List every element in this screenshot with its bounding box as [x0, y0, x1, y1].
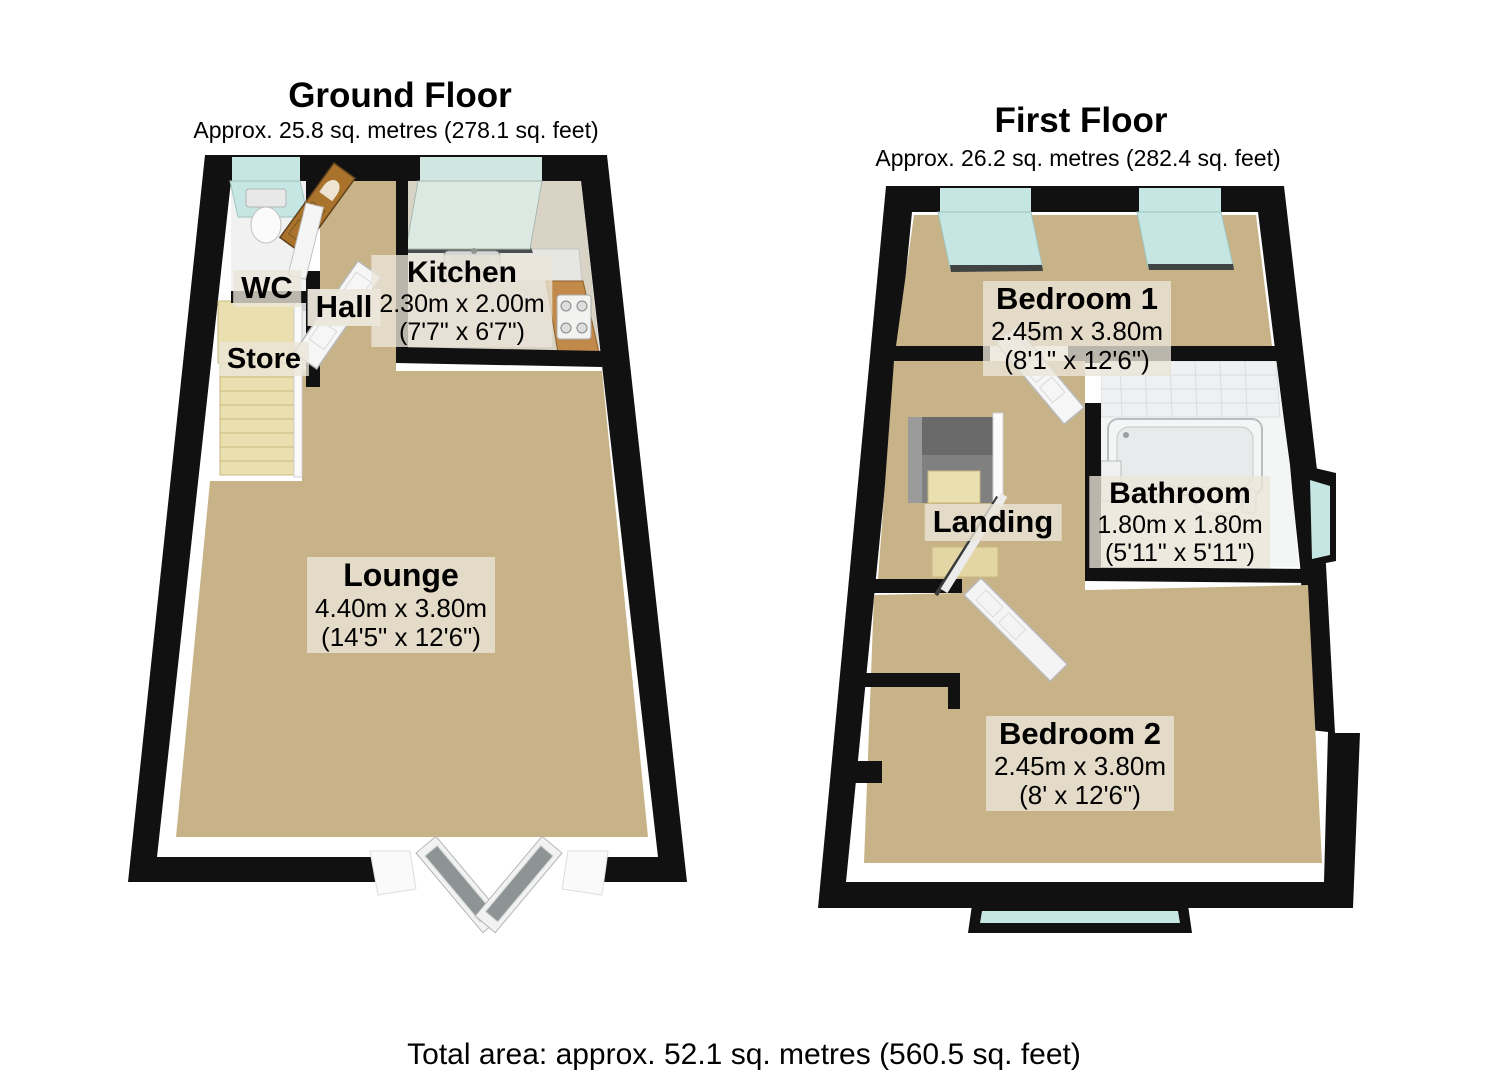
ff-bedroom1-window1-pane	[938, 212, 1042, 268]
gf-banister	[294, 301, 302, 477]
bedroom1-label: Bedroom 1 2.45m x 3.80m (8'1" x 12'6")	[983, 281, 1171, 376]
landing-label: Landing	[925, 504, 1062, 541]
ff-bedroom2-window-icon	[980, 911, 1180, 923]
first-floor-title: First Floor	[994, 101, 1167, 141]
lounge-dims-imperial: (14'5" x 12'6")	[315, 623, 487, 652]
ground-floor-title: Ground Floor	[288, 76, 512, 116]
lounge-dims-metric: 4.40m x 3.80m	[315, 594, 487, 623]
floorplan-page: Ground Floor Approx. 25.8 sq. metres (27…	[0, 0, 1485, 1080]
kitchen-name: Kitchen	[379, 256, 544, 290]
ff-window1-sill	[950, 265, 1043, 272]
gf-hob-icon	[557, 295, 591, 339]
first-floor-area: Approx. 26.2 sq. metres (282.4 sq. feet)	[875, 145, 1280, 172]
ff-bathroom-bottom-wall	[1085, 567, 1311, 583]
ff-window2-sill	[1148, 264, 1234, 270]
kitchen-dims-imperial: (7'7" x 6'7")	[379, 318, 544, 346]
bedroom2-name: Bedroom 2	[994, 717, 1166, 752]
ff-bedroom1-window1-icon	[940, 188, 1031, 212]
gf-kitchen-window-pane	[406, 181, 542, 249]
lounge-label: Lounge 4.40m x 3.80m (14'5" x 12'6")	[307, 557, 495, 653]
lounge-name: Lounge	[315, 558, 487, 594]
kitchen-dims-metric: 2.30m x 2.00m	[379, 290, 544, 318]
gf-patio-jamb-left	[370, 851, 416, 895]
gf-stairs	[218, 301, 302, 477]
ff-banister	[993, 413, 1003, 507]
bathroom-name: Bathroom	[1097, 477, 1262, 511]
gf-patio-jamb-right	[562, 851, 608, 895]
hall-label: Hall	[308, 289, 381, 326]
gf-kitchen-window-icon	[420, 157, 542, 181]
ff-bedroom1-window2-icon	[1139, 188, 1221, 212]
bathroom-dims-imperial: (5'11" x 5'11")	[1097, 539, 1262, 567]
gf-wc-window-icon	[232, 157, 300, 181]
kitchen-label: Kitchen 2.30m x 2.00m (7'7" x 6'7")	[371, 255, 552, 347]
ff-bathroom-window-icon	[1310, 480, 1330, 559]
bedroom1-dims-metric: 2.45m x 3.80m	[991, 317, 1163, 346]
ff-bedroom1-wall-left	[896, 346, 990, 361]
bedroom1-dims-imperial: (8'1" x 12'6")	[991, 346, 1163, 375]
bathroom-label: Bathroom 1.80m x 1.80m (5'11" x 5'11")	[1089, 476, 1270, 568]
store-label: Store	[219, 342, 309, 376]
bathroom-dims-metric: 1.80m x 1.80m	[1097, 511, 1262, 539]
bedroom2-dims-metric: 2.45m x 3.80m	[994, 752, 1166, 781]
total-area-text: Total area: approx. 52.1 sq. metres (560…	[407, 1038, 1081, 1072]
bedroom1-name: Bedroom 1	[991, 282, 1163, 317]
ff-bedroom1-window2-pane	[1137, 212, 1233, 267]
bedroom2-label: Bedroom 2 2.45m x 3.80m (8' x 12'6")	[986, 716, 1174, 811]
ground-floor-area: Approx. 25.8 sq. metres (278.1 sq. feet)	[193, 117, 598, 144]
wc-label: WC	[233, 270, 301, 307]
bedroom2-dims-imperial: (8' x 12'6")	[994, 781, 1166, 810]
